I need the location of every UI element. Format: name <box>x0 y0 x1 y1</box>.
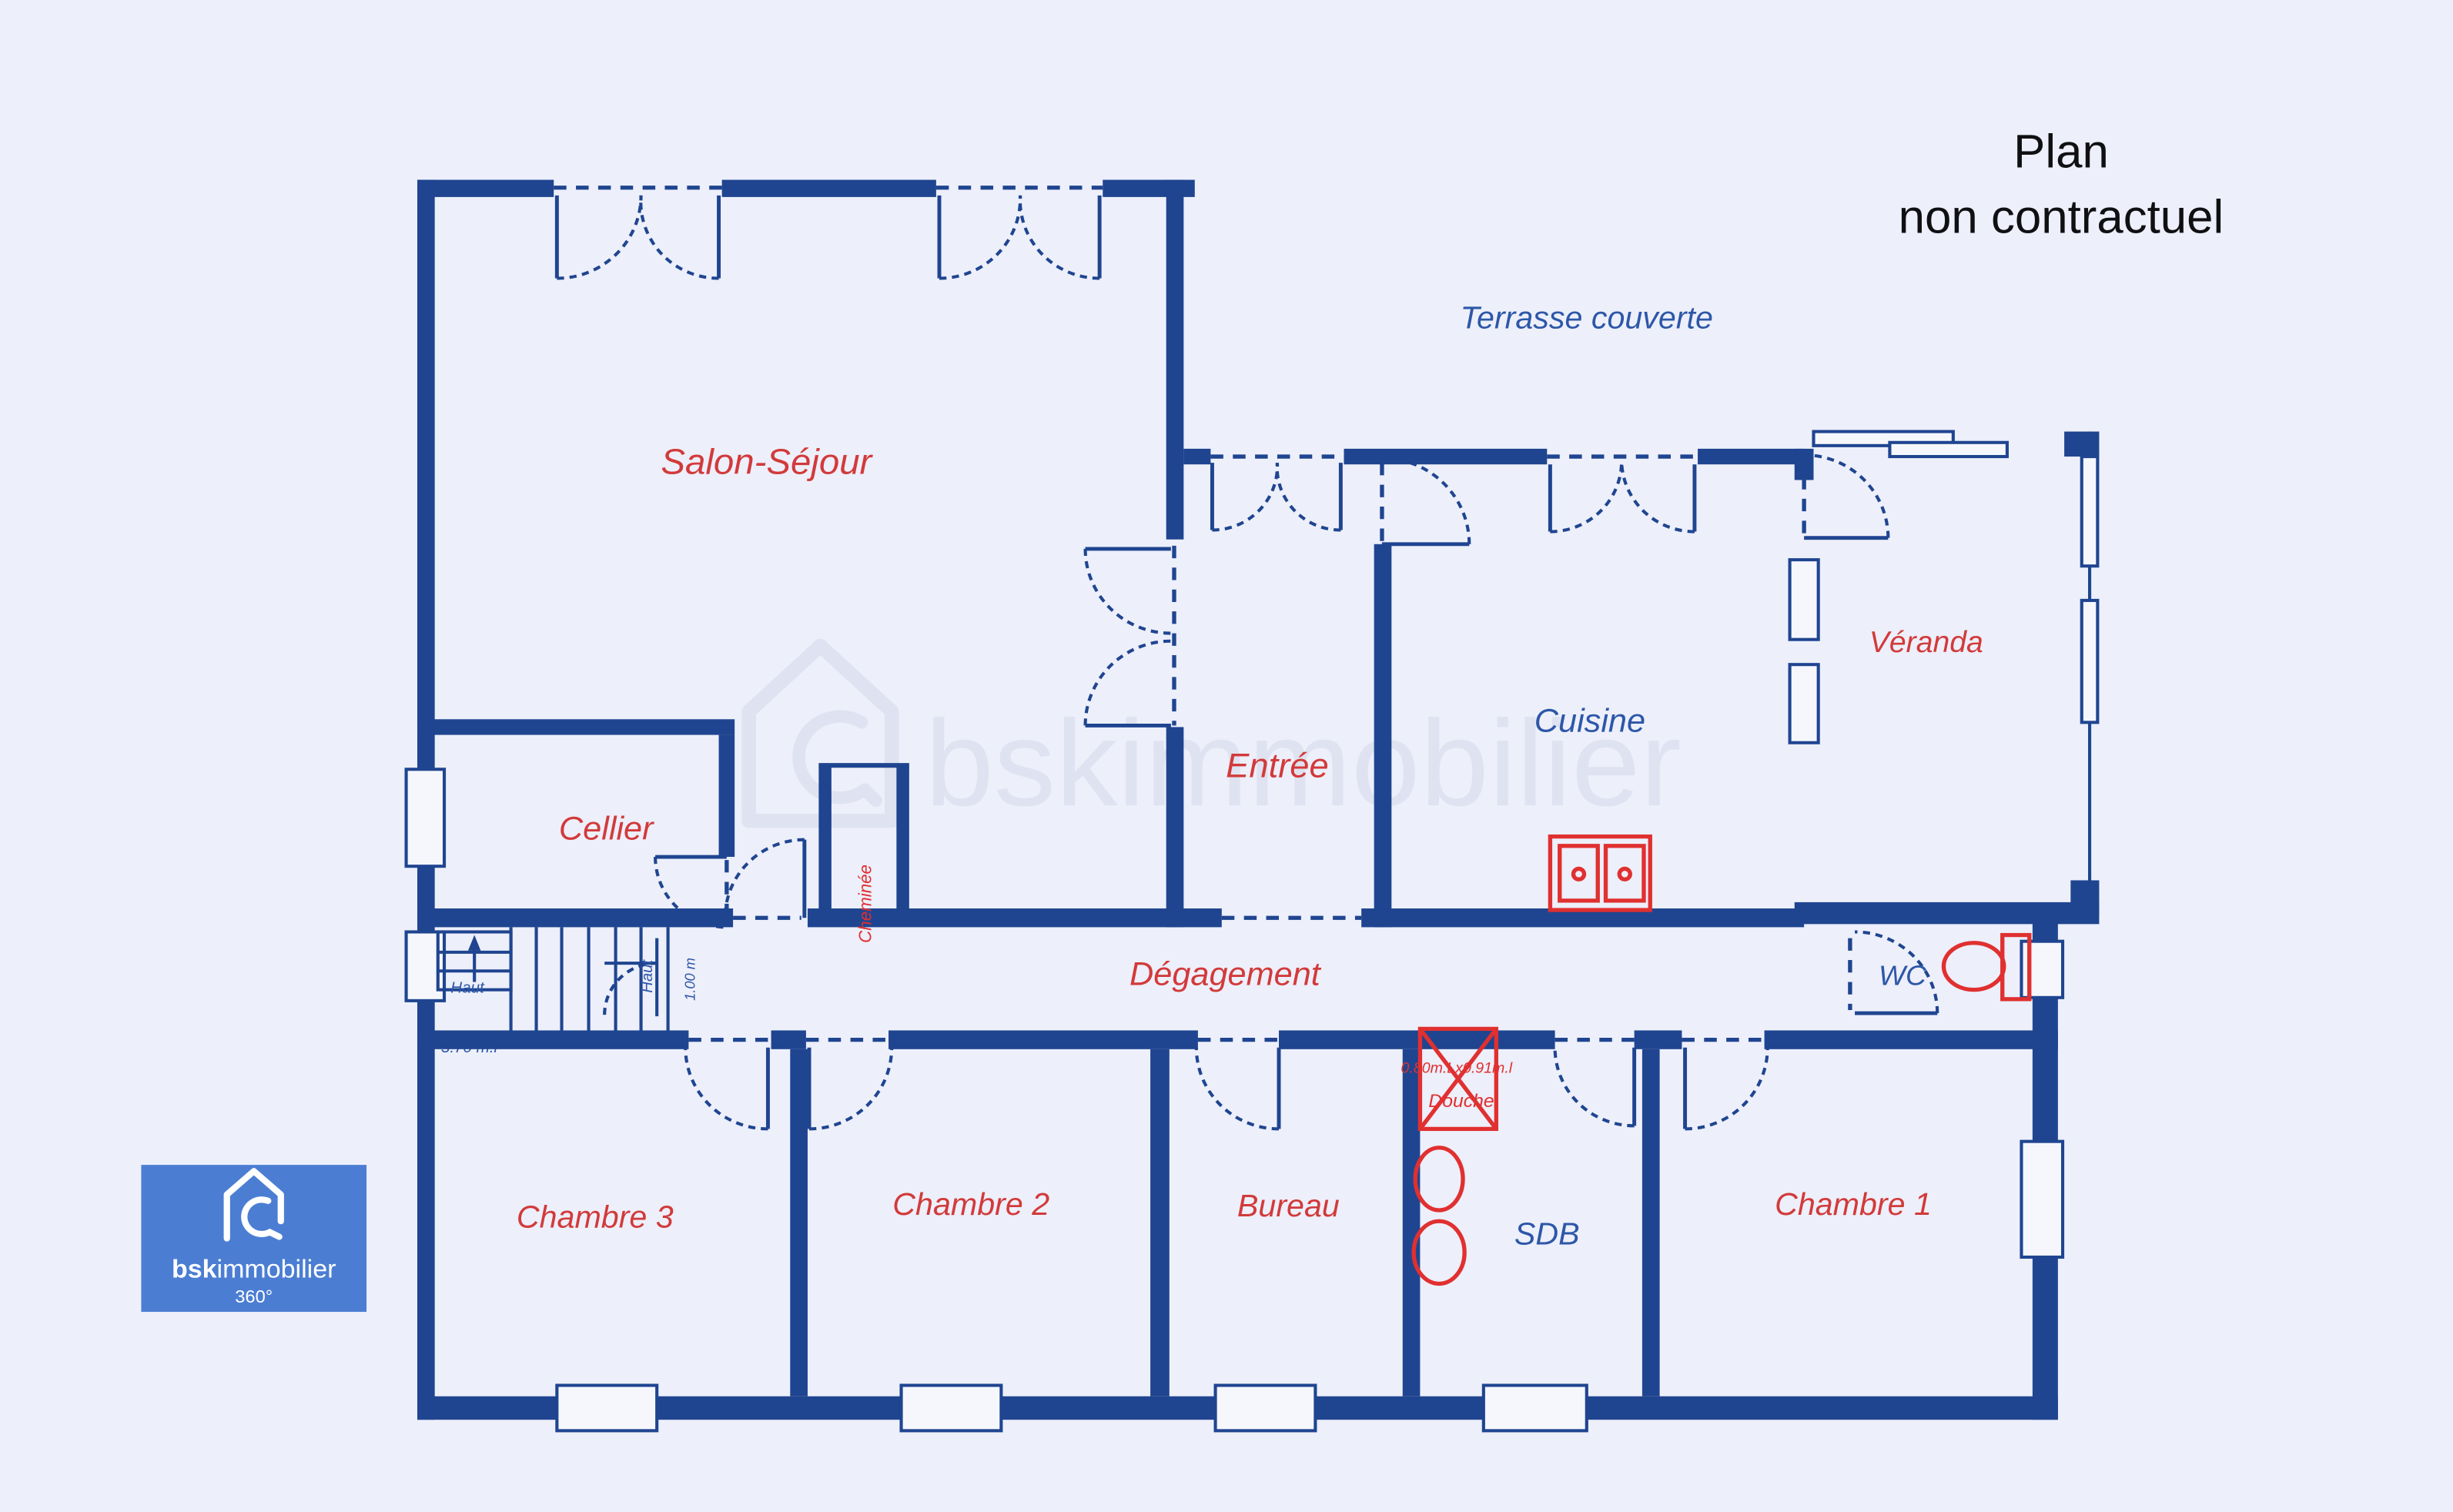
door-veranda <box>1804 455 1888 538</box>
wall-segment <box>790 1049 808 1397</box>
fireplace-wall <box>896 766 909 922</box>
fireplace-wall <box>818 763 909 768</box>
watermark-swirl <box>798 717 875 801</box>
french-door-cuisine <box>1547 457 1698 531</box>
wall-segment <box>719 735 735 857</box>
plan-title-line1: Plan <box>2013 125 2109 178</box>
wall-segment <box>1166 727 1184 927</box>
window <box>2082 600 2098 722</box>
wall-segment <box>771 1030 806 1049</box>
door-chambre1 <box>1682 1040 1767 1129</box>
window <box>1790 560 1819 640</box>
room-label-chambre1: Chambre 1 <box>1775 1186 1932 1222</box>
wall-segment <box>2070 880 2099 915</box>
room-label-cheminee: Cheminée <box>855 865 875 943</box>
door-salon-corridor <box>725 840 805 918</box>
wall-segment <box>417 180 554 197</box>
window <box>1889 443 2006 457</box>
room-labels: Salon-Séjour Cellier Cheminée Entrée Ter… <box>517 300 1983 1252</box>
room-label-cellier: Cellier <box>559 811 654 848</box>
wall-segment <box>417 908 733 927</box>
logo-badge-360: 360° <box>235 1286 273 1306</box>
wall-segment <box>1183 449 1210 464</box>
logo-wordmark: bskimmobilier <box>172 1255 336 1284</box>
window <box>1790 664 1819 743</box>
stair-arrow-head <box>468 935 480 951</box>
toilet-icon <box>1943 935 2029 999</box>
room-label-cuisine: Cuisine <box>1534 703 1645 740</box>
room-label-salon: Salon-Séjour <box>661 441 873 482</box>
windows <box>407 560 2063 1430</box>
wall-segment <box>1279 1030 1555 1049</box>
floor-plan: bskimmobilier 3.70 m.l <box>0 0 2453 1512</box>
shower-dimensions: 0.80m.Lx0.91m.l <box>1401 1059 1513 1076</box>
window <box>557 1385 657 1430</box>
plan-title-line2: non contractuel <box>1899 191 2224 243</box>
wall-segment <box>2064 432 2099 457</box>
room-label-chambre2: Chambre 2 <box>892 1186 1049 1222</box>
french-door-entree <box>1210 457 1344 530</box>
wall-segment <box>1642 1049 1660 1397</box>
wall-segment <box>417 719 735 734</box>
staircase: Haut Haut 1.00 m <box>438 927 698 1030</box>
wall-segment <box>722 180 936 197</box>
wall-segment <box>417 1030 688 1049</box>
wall-segment <box>1698 449 1804 464</box>
window <box>2082 457 2098 566</box>
room-label-entree: Entrée <box>1226 746 1329 785</box>
stairs-haut-label-rotated: Haut <box>638 959 656 993</box>
kitchen-sink-icon <box>1550 837 1650 910</box>
brand-logo: bskimmobilier 360° <box>141 1165 366 1312</box>
french-door <box>554 188 721 279</box>
room-label-chambre3: Chambre 3 <box>517 1199 674 1235</box>
wall-segment <box>1374 544 1392 928</box>
room-label-wc: WC <box>1879 960 1926 992</box>
wall-segment <box>1166 180 1184 540</box>
wall-segment <box>1635 1030 1682 1049</box>
door-sdb <box>1555 1040 1635 1126</box>
window <box>2021 1142 2063 1257</box>
room-label-degagement: Dégagement <box>1129 956 1322 993</box>
door-chambre2 <box>806 1040 892 1129</box>
door-entree-cuisine <box>1382 458 1469 544</box>
window <box>407 769 444 866</box>
room-label-sdb: SDB <box>1514 1216 1580 1252</box>
wall-segment <box>1403 1049 1421 1397</box>
room-label-bureau: Bureau <box>1237 1188 1340 1223</box>
washbasin-icon <box>1414 1221 1464 1283</box>
room-label-terrasse: Terrasse couverte <box>1461 300 1713 336</box>
french-door <box>936 188 1103 279</box>
wall-segment <box>889 1030 1198 1049</box>
door-chambre3 <box>685 1040 771 1129</box>
fireplace-wall <box>818 766 831 922</box>
wall-segment <box>1765 1030 2058 1049</box>
wall-segment <box>1150 1049 1170 1397</box>
stairs-haut-label: Haut <box>450 979 485 997</box>
room-label-veranda: Véranda <box>1869 626 1983 659</box>
window <box>902 1385 1002 1430</box>
stairs-width-label: 1.00 m <box>682 958 698 1001</box>
wall-segment <box>1344 449 1547 464</box>
washbasin-icon <box>1415 1148 1463 1210</box>
window <box>1484 1385 1587 1430</box>
veranda-glazing <box>1813 432 2097 902</box>
window <box>1216 1385 1316 1430</box>
door-bureau <box>1196 1040 1279 1129</box>
shower-label: Douche <box>1428 1091 1494 1112</box>
plan-title: Plan non contractuel <box>1899 125 2224 244</box>
